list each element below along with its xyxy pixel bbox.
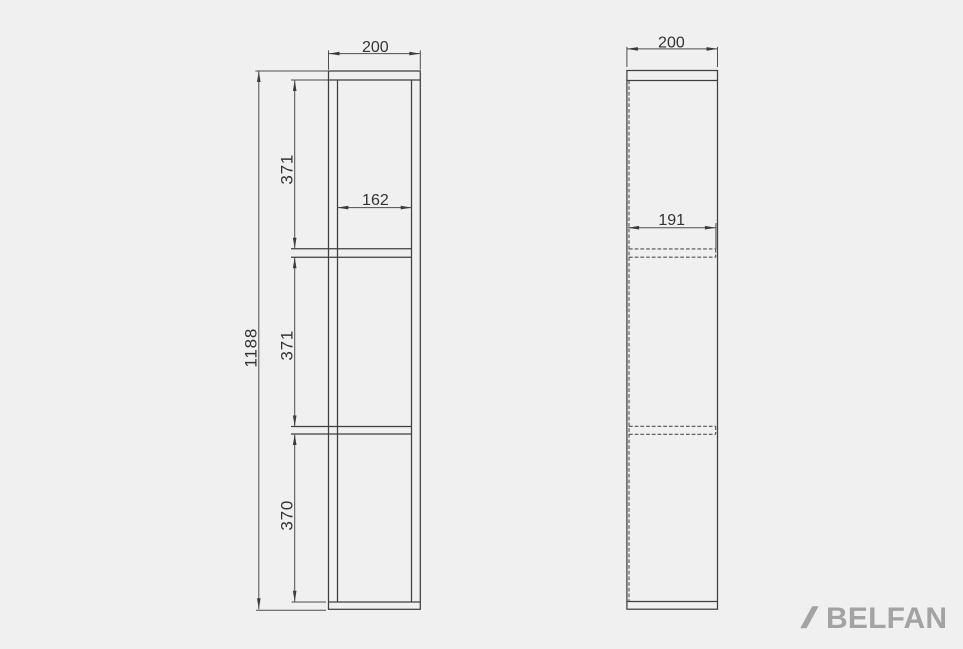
svg-text:371: 371: [278, 330, 297, 361]
svg-text:371: 371: [278, 154, 297, 185]
svg-text:191: 191: [658, 212, 685, 229]
svg-text:370: 370: [278, 500, 297, 531]
svg-text:162: 162: [362, 192, 389, 209]
svg-text:BELFAN: BELFAN: [826, 602, 947, 635]
svg-text:200: 200: [658, 34, 685, 51]
svg-text:1188: 1188: [242, 328, 261, 368]
svg-text:200: 200: [362, 39, 389, 56]
